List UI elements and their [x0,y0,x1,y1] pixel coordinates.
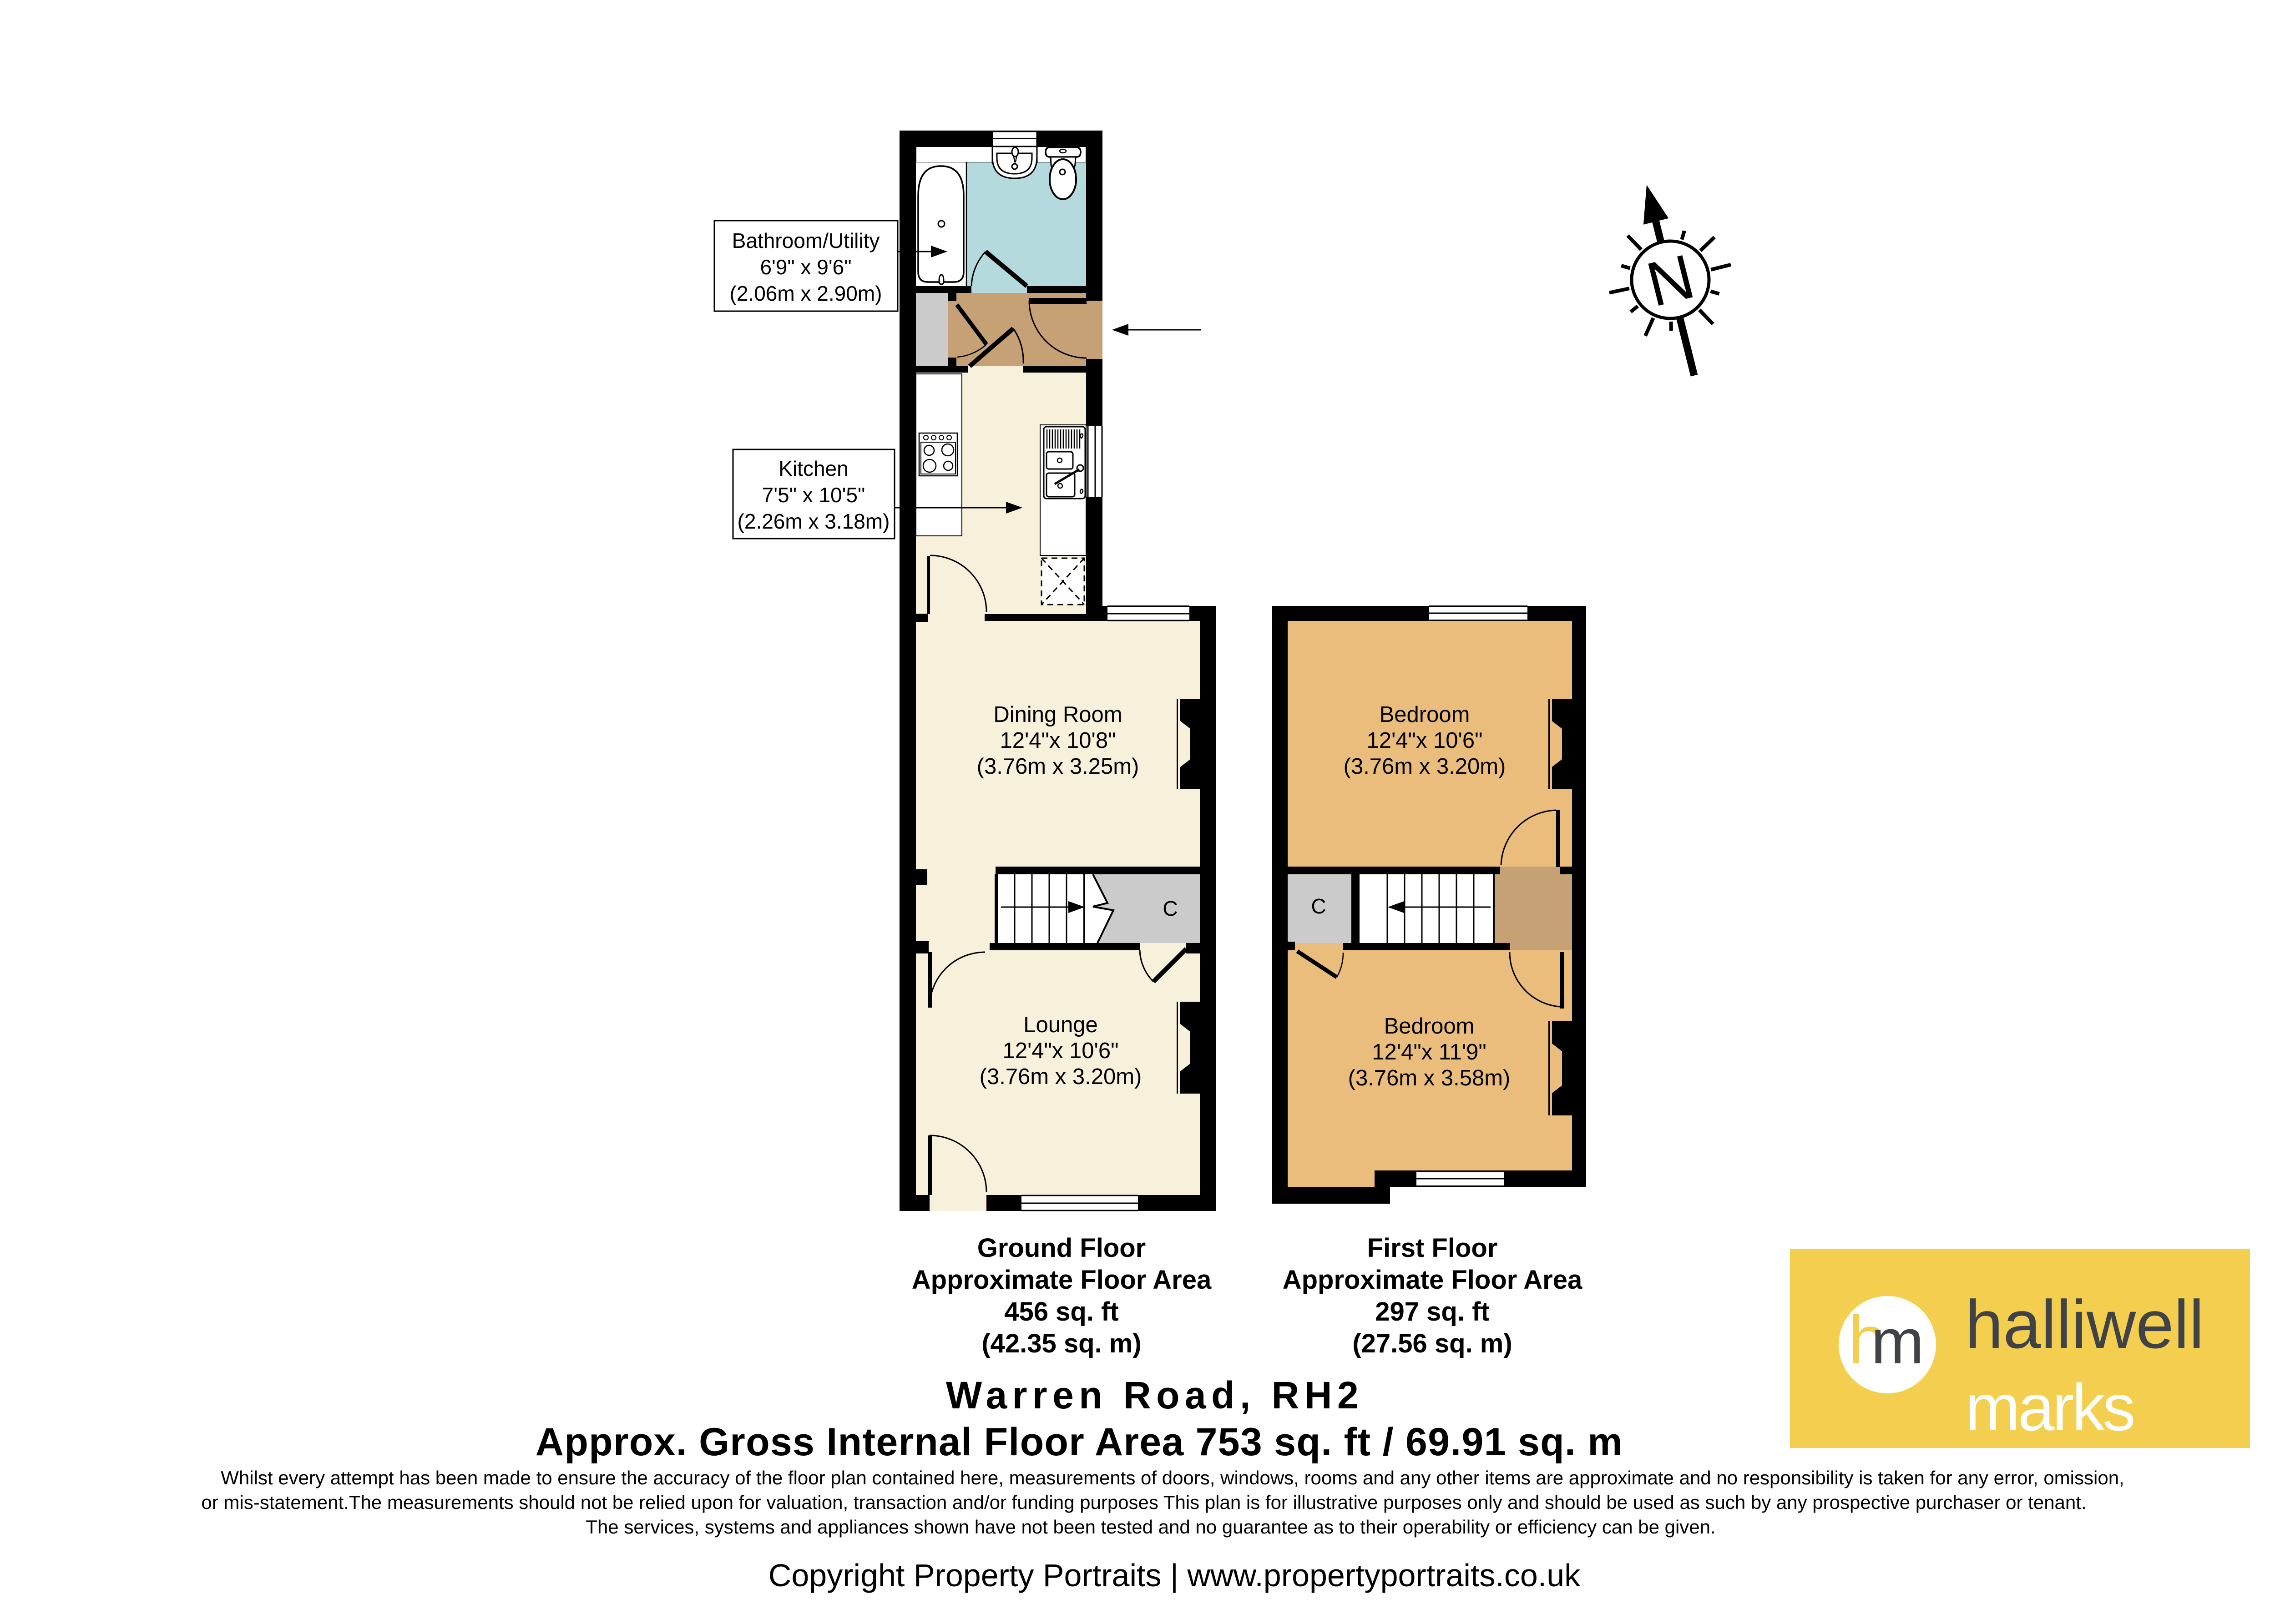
svg-text:(2.26m x 3.18m): (2.26m x 3.18m) [738,509,890,533]
svg-text:Lounge: Lounge [1023,1013,1098,1037]
svg-text:12'4"x 10'6": 12'4"x 10'6" [1366,728,1482,753]
svg-text:(2.06m x 2.90m): (2.06m x 2.90m) [730,282,882,305]
svg-text:marks: marks [1965,1371,2133,1444]
svg-text:The services, systems and appl: The services, systems and appliances sho… [586,1516,1715,1538]
svg-text:Whilst every attempt has been: Whilst every attempt has been made to en… [221,1467,2124,1488]
svg-text:Approximate Floor Area: Approximate Floor Area [912,1265,1212,1295]
svg-text:Approximate Floor Area: Approximate Floor Area [1283,1265,1582,1295]
svg-text:Bedroom: Bedroom [1380,702,1470,727]
svg-text:m: m [1871,1306,1924,1377]
svg-text:456 sq. ft: 456 sq. ft [1004,1297,1118,1326]
svg-text:First Floor: First Floor [1367,1233,1498,1263]
svg-text:Warren Road, RH2: Warren Road, RH2 [946,1374,1364,1417]
svg-text:(42.35 sq. m): (42.35 sq. m) [981,1329,1141,1358]
svg-text:C: C [1163,897,1178,920]
svg-text:297 sq. ft: 297 sq. ft [1375,1297,1489,1326]
svg-text:12'4"x 10'8": 12'4"x 10'8" [1000,728,1116,753]
svg-text:Copyright Property Portraits |: Copyright Property Portraits | www.prope… [768,1558,1581,1593]
svg-text:Bathroom/Utility: Bathroom/Utility [732,229,880,252]
svg-text:(3.76m x 3.20m): (3.76m x 3.20m) [980,1064,1142,1089]
svg-text:Dining Room: Dining Room [993,702,1122,727]
svg-text:halliwell: halliwell [1965,1286,2204,1362]
svg-text:(3.76m x 3.20m): (3.76m x 3.20m) [1344,754,1506,779]
svg-text:Ground Floor: Ground Floor [977,1233,1146,1263]
svg-text:Kitchen: Kitchen [779,457,848,480]
svg-text:6'9" x 9'6": 6'9" x 9'6" [760,255,851,279]
svg-text:(3.76m x 3.25m): (3.76m x 3.25m) [977,754,1139,779]
svg-text:12'4"x 10'6": 12'4"x 10'6" [1002,1039,1118,1063]
svg-text:7'5" x 10'5": 7'5" x 10'5" [762,483,865,507]
svg-text:Bedroom: Bedroom [1384,1014,1475,1039]
svg-text:or mis-statement.The measureme: or mis-statement.The measurements should… [201,1492,2086,1513]
svg-text:(27.56 sq. m): (27.56 sq. m) [1352,1329,1512,1358]
svg-text:C: C [1311,894,1326,918]
svg-text:12'4"x 11'9": 12'4"x 11'9" [1372,1040,1486,1064]
svg-text:(3.76m x 3.58m): (3.76m x 3.58m) [1348,1066,1511,1090]
svg-text:Approx. Gross Internal Floor A: Approx. Gross Internal Floor Area 753 sq… [536,1420,1623,1464]
